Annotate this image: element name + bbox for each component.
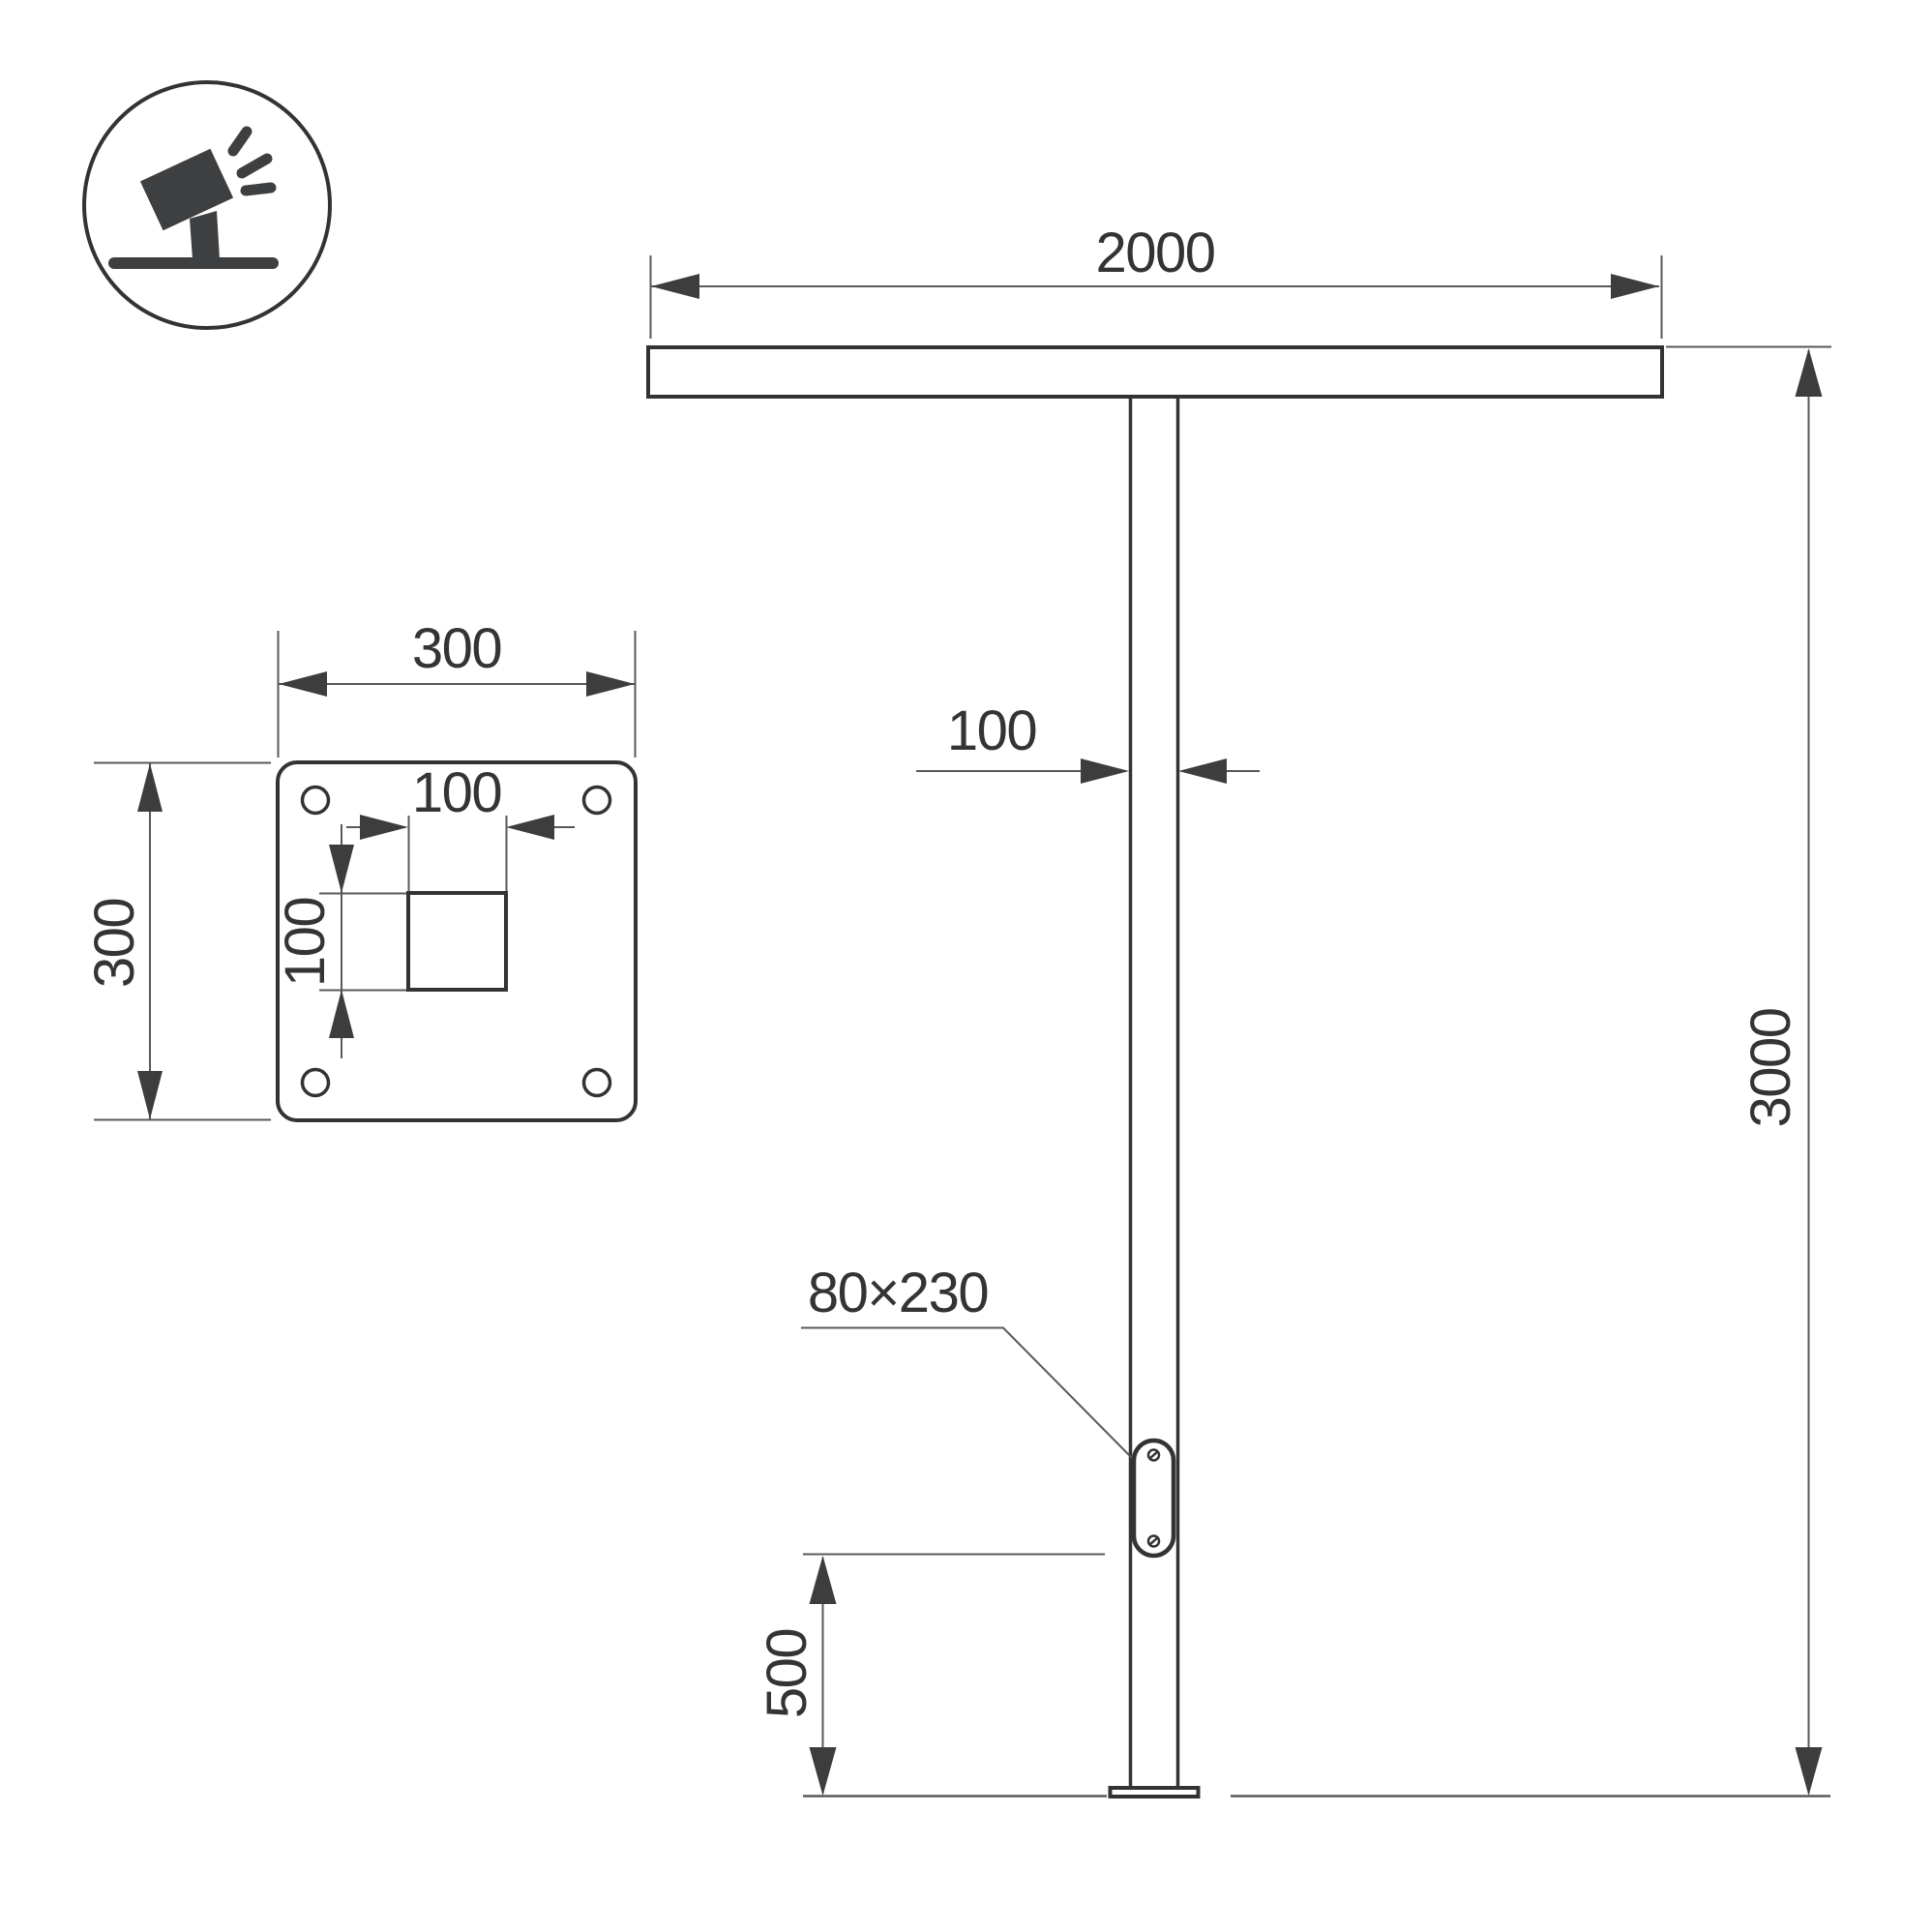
base-flange	[1111, 1788, 1199, 1797]
technical-drawing-canvas: 2000 100 3000 80×230 500 300 300 100 100	[0, 0, 1932, 1932]
light-rays-icon	[233, 132, 271, 191]
floodlight-icon	[84, 82, 330, 328]
service-door-oval	[1134, 1441, 1174, 1556]
arrow-left-icon	[651, 274, 699, 299]
dim-label-plate-width: 300	[412, 621, 501, 677]
dim-door-offset	[803, 1555, 1105, 1797]
dim-label-plate-height: 300	[87, 899, 143, 988]
dim-label-pole-width: 100	[947, 703, 1036, 759]
arrow-up-icon	[1796, 348, 1823, 397]
dim-label-door-offset: 500	[759, 1629, 816, 1718]
floodlight-base	[108, 257, 279, 269]
arrow-right-icon	[586, 671, 635, 697]
arrow-right-icon	[1081, 758, 1129, 784]
dim-label-hole-width: 100	[412, 765, 501, 821]
arrow-right-icon	[1611, 274, 1659, 299]
center-square-hole	[408, 893, 506, 990]
dim-label-service-door: 80×230	[808, 1265, 988, 1322]
arrow-up-icon	[810, 1556, 837, 1604]
door-leader-line	[801, 1328, 1132, 1459]
base-plate-view	[94, 631, 636, 1120]
arrow-left-icon	[279, 671, 327, 697]
dim-label-total-height: 3000	[1743, 1008, 1799, 1127]
arrow-down-icon	[810, 1747, 837, 1796]
arrow-down-icon	[137, 1071, 163, 1119]
elevation-view	[648, 255, 1831, 1797]
floodlight-post	[190, 211, 220, 259]
arrow-left-icon	[1178, 758, 1227, 784]
arrow-up-icon	[137, 763, 163, 812]
arrow-down-icon	[1796, 1747, 1823, 1796]
dim-label-crossbar-length: 2000	[1095, 225, 1214, 282]
crossbar	[648, 347, 1662, 397]
floodlight-body	[140, 149, 233, 231]
dim-label-hole-height: 100	[278, 898, 334, 987]
pole	[1131, 397, 1178, 1788]
